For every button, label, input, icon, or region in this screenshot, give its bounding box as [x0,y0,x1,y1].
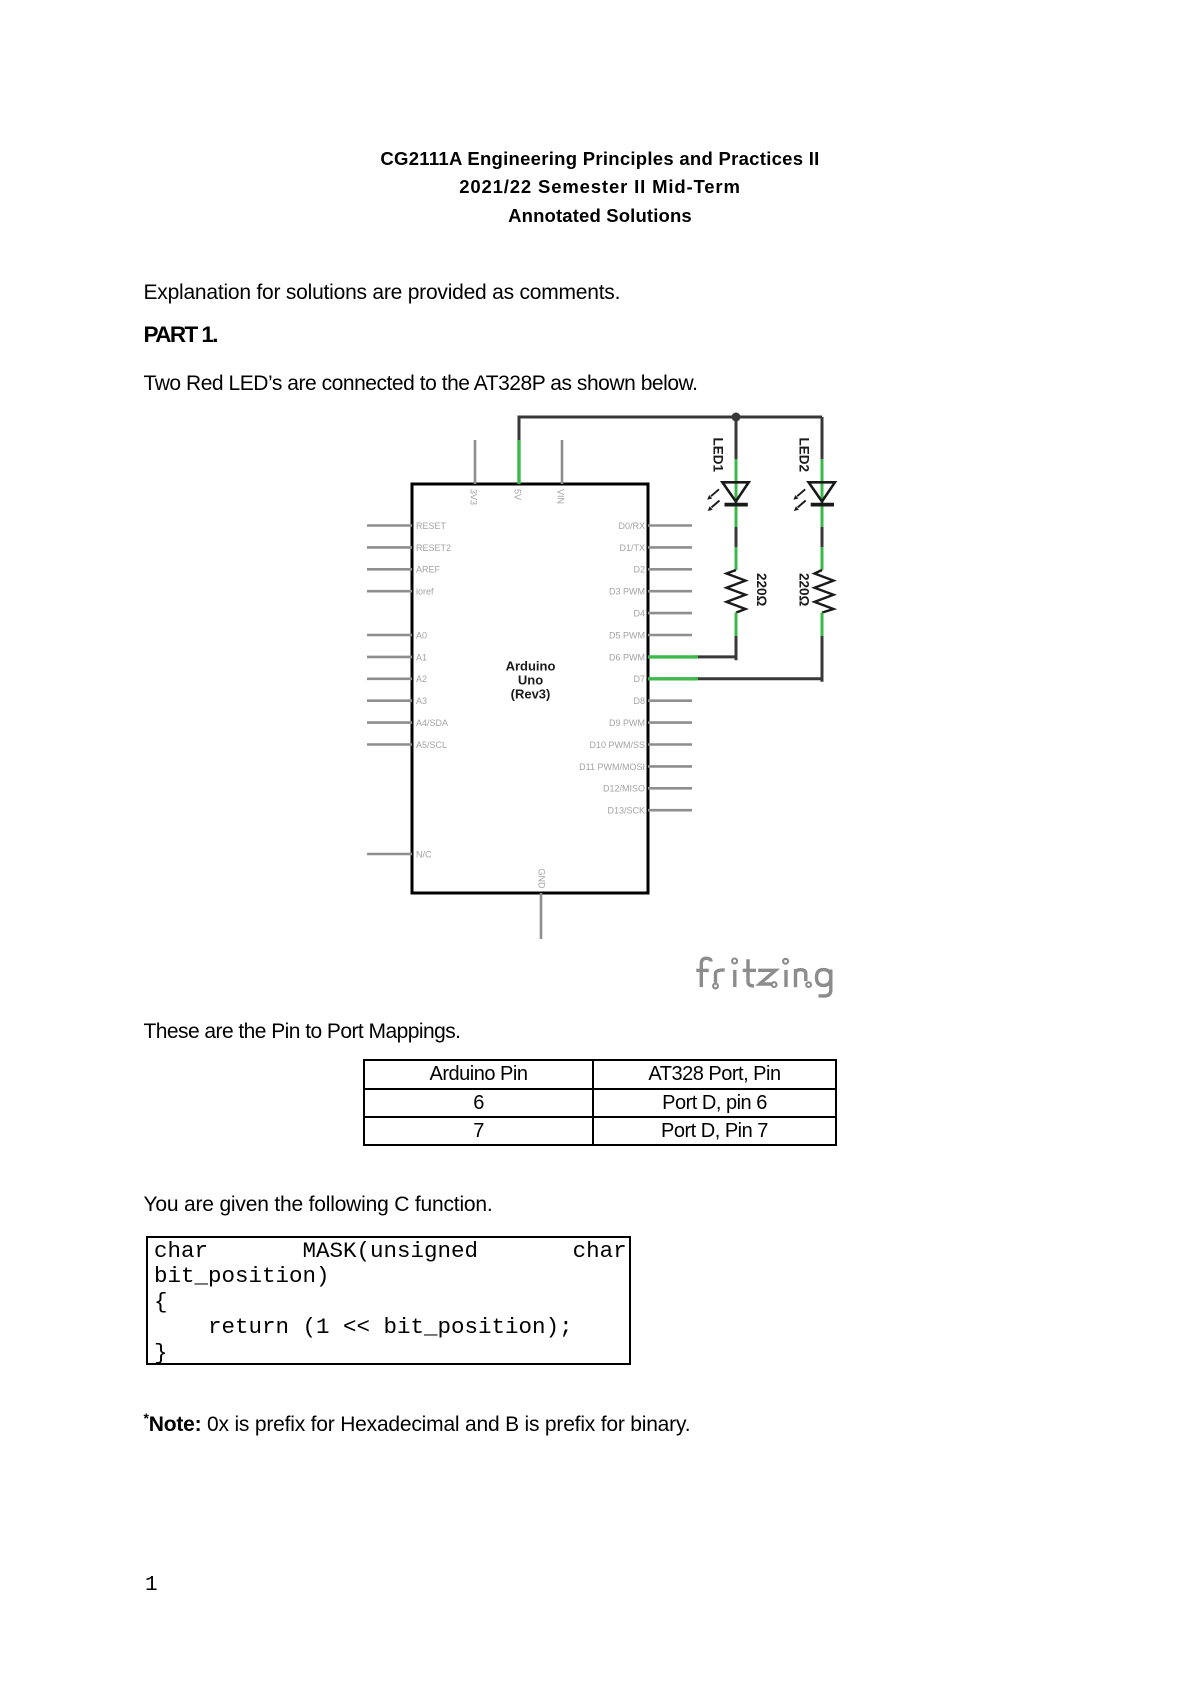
svg-text:RESET2: RESET2 [416,543,451,553]
svg-text:D0/RX: D0/RX [618,521,645,531]
svg-text:A2: A2 [416,674,427,684]
svg-text:D4: D4 [633,609,645,619]
svg-text:LED2: LED2 [797,438,812,473]
svg-text:D13/SCK: D13/SCK [607,806,645,816]
svg-text:VIN: VIN [556,489,566,504]
svg-text:5V: 5V [513,489,523,500]
svg-text:Arduino: Arduino [506,659,556,674]
svg-text:3V3: 3V3 [469,489,479,505]
svg-text:A5/SCL: A5/SCL [416,740,447,750]
svg-text:LED1: LED1 [711,438,726,473]
svg-text:N/C: N/C [416,849,432,859]
svg-text:D8: D8 [633,696,645,706]
svg-text:A4/SDA: A4/SDA [416,718,448,728]
svg-text:D6 PWM: D6 PWM [609,652,645,662]
svg-text:D7: D7 [633,674,645,684]
svg-text:D1/TX: D1/TX [619,543,645,553]
svg-text:RESET: RESET [416,521,447,531]
svg-text:D2: D2 [633,565,645,575]
svg-text:D3 PWM: D3 PWM [609,587,645,597]
svg-text:A3: A3 [416,696,427,706]
svg-text:ioref: ioref [416,587,434,597]
svg-text:D10 PWM/SS: D10 PWM/SS [589,740,645,750]
svg-text:D9 PWM: D9 PWM [609,718,645,728]
svg-text:Uno: Uno [518,673,543,688]
svg-text:AREF: AREF [416,565,441,575]
svg-text:(Rev3): (Rev3) [511,686,551,701]
svg-text:D12/MISO: D12/MISO [603,784,645,794]
svg-text:GND: GND [537,869,547,890]
svg-text:A0: A0 [416,630,427,640]
svg-text:D11 PWM/MOSI: D11 PWM/MOSI [579,762,645,772]
svg-text:220Ω: 220Ω [797,573,812,607]
svg-text:D5 PWM: D5 PWM [609,630,645,640]
svg-text:220Ω: 220Ω [754,573,769,607]
svg-text:A1: A1 [416,652,427,662]
